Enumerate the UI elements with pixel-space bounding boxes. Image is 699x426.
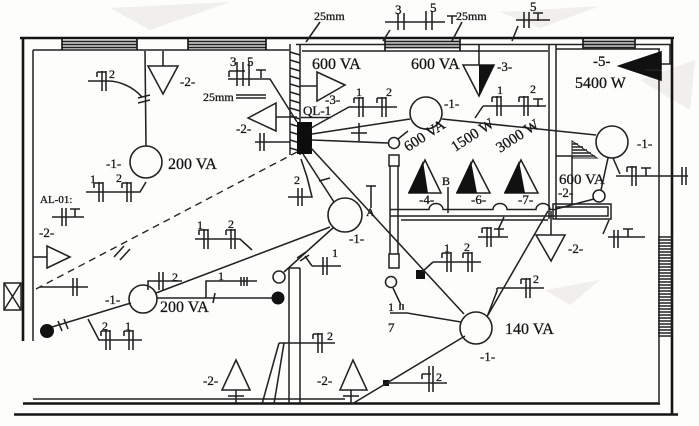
svg-text:-2-: -2- bbox=[568, 241, 583, 256]
svg-text:25mm: 25mm bbox=[456, 9, 487, 23]
svg-text:2: 2 bbox=[294, 173, 300, 187]
svg-text:-2-: -2- bbox=[317, 373, 332, 388]
svg-text:2: 2 bbox=[530, 82, 536, 96]
svg-text:-6-: -6- bbox=[471, 192, 486, 207]
svg-text:25mm: 25mm bbox=[314, 9, 345, 23]
svg-text:-1-: -1- bbox=[480, 349, 495, 364]
svg-text:1: 1 bbox=[388, 300, 394, 314]
svg-text:-2-: -2- bbox=[236, 121, 251, 136]
svg-text:-2-: -2- bbox=[39, 225, 54, 240]
svg-text:-1-: -1- bbox=[444, 96, 459, 111]
svg-text:2: 2 bbox=[116, 171, 122, 185]
svg-text:1: 1 bbox=[90, 172, 96, 186]
svg-text:2: 2 bbox=[102, 319, 108, 333]
svg-text:B: B bbox=[442, 174, 450, 188]
svg-text:1: 1 bbox=[444, 241, 450, 255]
svg-text:5: 5 bbox=[430, 0, 437, 15]
svg-text:200 VA: 200 VA bbox=[160, 299, 209, 316]
svg-text:5400 W: 5400 W bbox=[575, 75, 627, 92]
svg-text:-3-: -3- bbox=[497, 59, 512, 74]
svg-text:-1-: -1- bbox=[106, 156, 121, 171]
svg-text:1: 1 bbox=[332, 246, 338, 260]
svg-text:2: 2 bbox=[464, 240, 470, 254]
svg-text:-2-: -2- bbox=[558, 185, 573, 200]
svg-text:-3-: -3- bbox=[325, 92, 340, 107]
svg-text:AL-01:: AL-01: bbox=[40, 194, 72, 206]
svg-text:2: 2 bbox=[386, 85, 392, 99]
svg-text:-1-: -1- bbox=[637, 136, 652, 151]
svg-text:3: 3 bbox=[395, 2, 402, 17]
svg-text:600 VA: 600 VA bbox=[411, 56, 460, 73]
svg-text:1: 1 bbox=[218, 269, 224, 283]
svg-text:7: 7 bbox=[388, 320, 395, 335]
svg-text:-1-: -1- bbox=[349, 231, 364, 246]
svg-text:600 VA: 600 VA bbox=[312, 56, 361, 73]
svg-text:-2-: -2- bbox=[180, 74, 195, 89]
svg-text:2: 2 bbox=[533, 272, 539, 286]
svg-text:2: 2 bbox=[109, 67, 115, 81]
svg-text:-5-: -5- bbox=[593, 54, 611, 70]
svg-text:-1-: -1- bbox=[105, 292, 120, 307]
svg-text:A: A bbox=[366, 205, 375, 219]
svg-text:5: 5 bbox=[247, 54, 254, 69]
svg-text:2: 2 bbox=[172, 270, 178, 284]
svg-text:2: 2 bbox=[436, 370, 442, 384]
svg-text:3: 3 bbox=[230, 54, 237, 69]
svg-text:1: 1 bbox=[197, 218, 203, 232]
svg-text:5: 5 bbox=[530, 0, 537, 14]
svg-text:-2-: -2- bbox=[203, 373, 218, 388]
svg-text:2: 2 bbox=[228, 217, 234, 231]
svg-text:1: 1 bbox=[497, 83, 503, 97]
svg-text:25mm: 25mm bbox=[203, 90, 234, 104]
svg-text:140 VA: 140 VA bbox=[505, 321, 554, 338]
svg-text:1: 1 bbox=[356, 85, 362, 99]
svg-text:-7-: -7- bbox=[518, 192, 533, 207]
svg-text:2: 2 bbox=[327, 329, 333, 343]
svg-text:200 VA: 200 VA bbox=[168, 156, 217, 173]
svg-text:1: 1 bbox=[125, 319, 131, 333]
svg-text:-4-: -4- bbox=[419, 192, 434, 207]
